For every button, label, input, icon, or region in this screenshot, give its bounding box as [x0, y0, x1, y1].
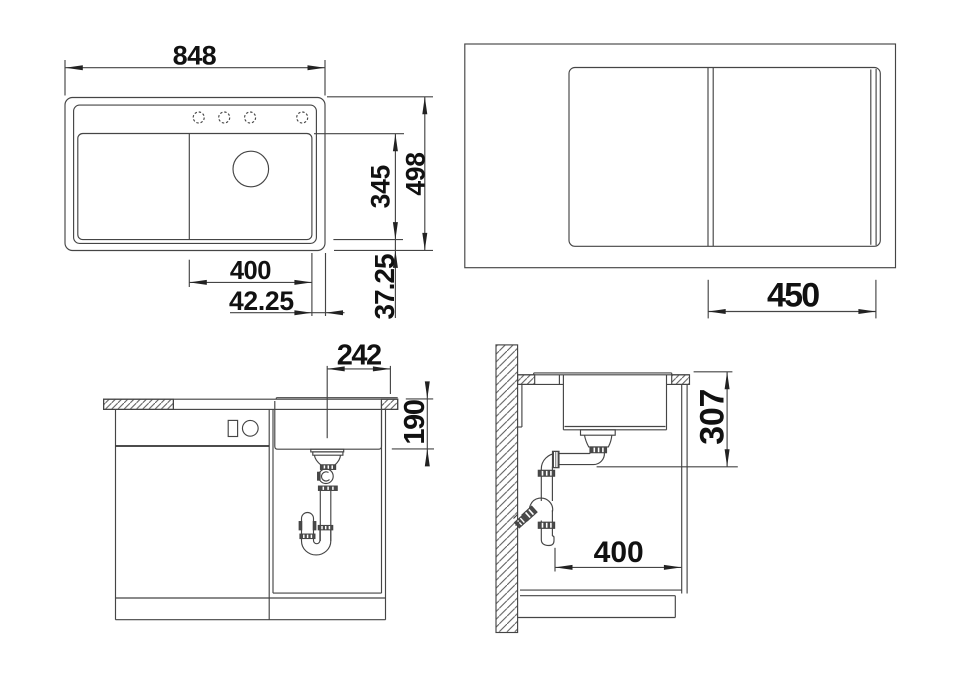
svg-text:242: 242	[337, 340, 381, 372]
svg-text:498: 498	[400, 152, 430, 195]
svg-text:450: 450	[767, 276, 819, 314]
svg-text:400: 400	[594, 536, 644, 569]
svg-text:345: 345	[366, 165, 396, 208]
svg-text:400: 400	[230, 257, 271, 285]
svg-text:307: 307	[693, 389, 731, 445]
svg-text:37.25: 37.25	[369, 254, 400, 319]
svg-text:42.25: 42.25	[229, 286, 294, 316]
svg-text:190: 190	[399, 400, 431, 444]
svg-text:848: 848	[173, 41, 217, 71]
